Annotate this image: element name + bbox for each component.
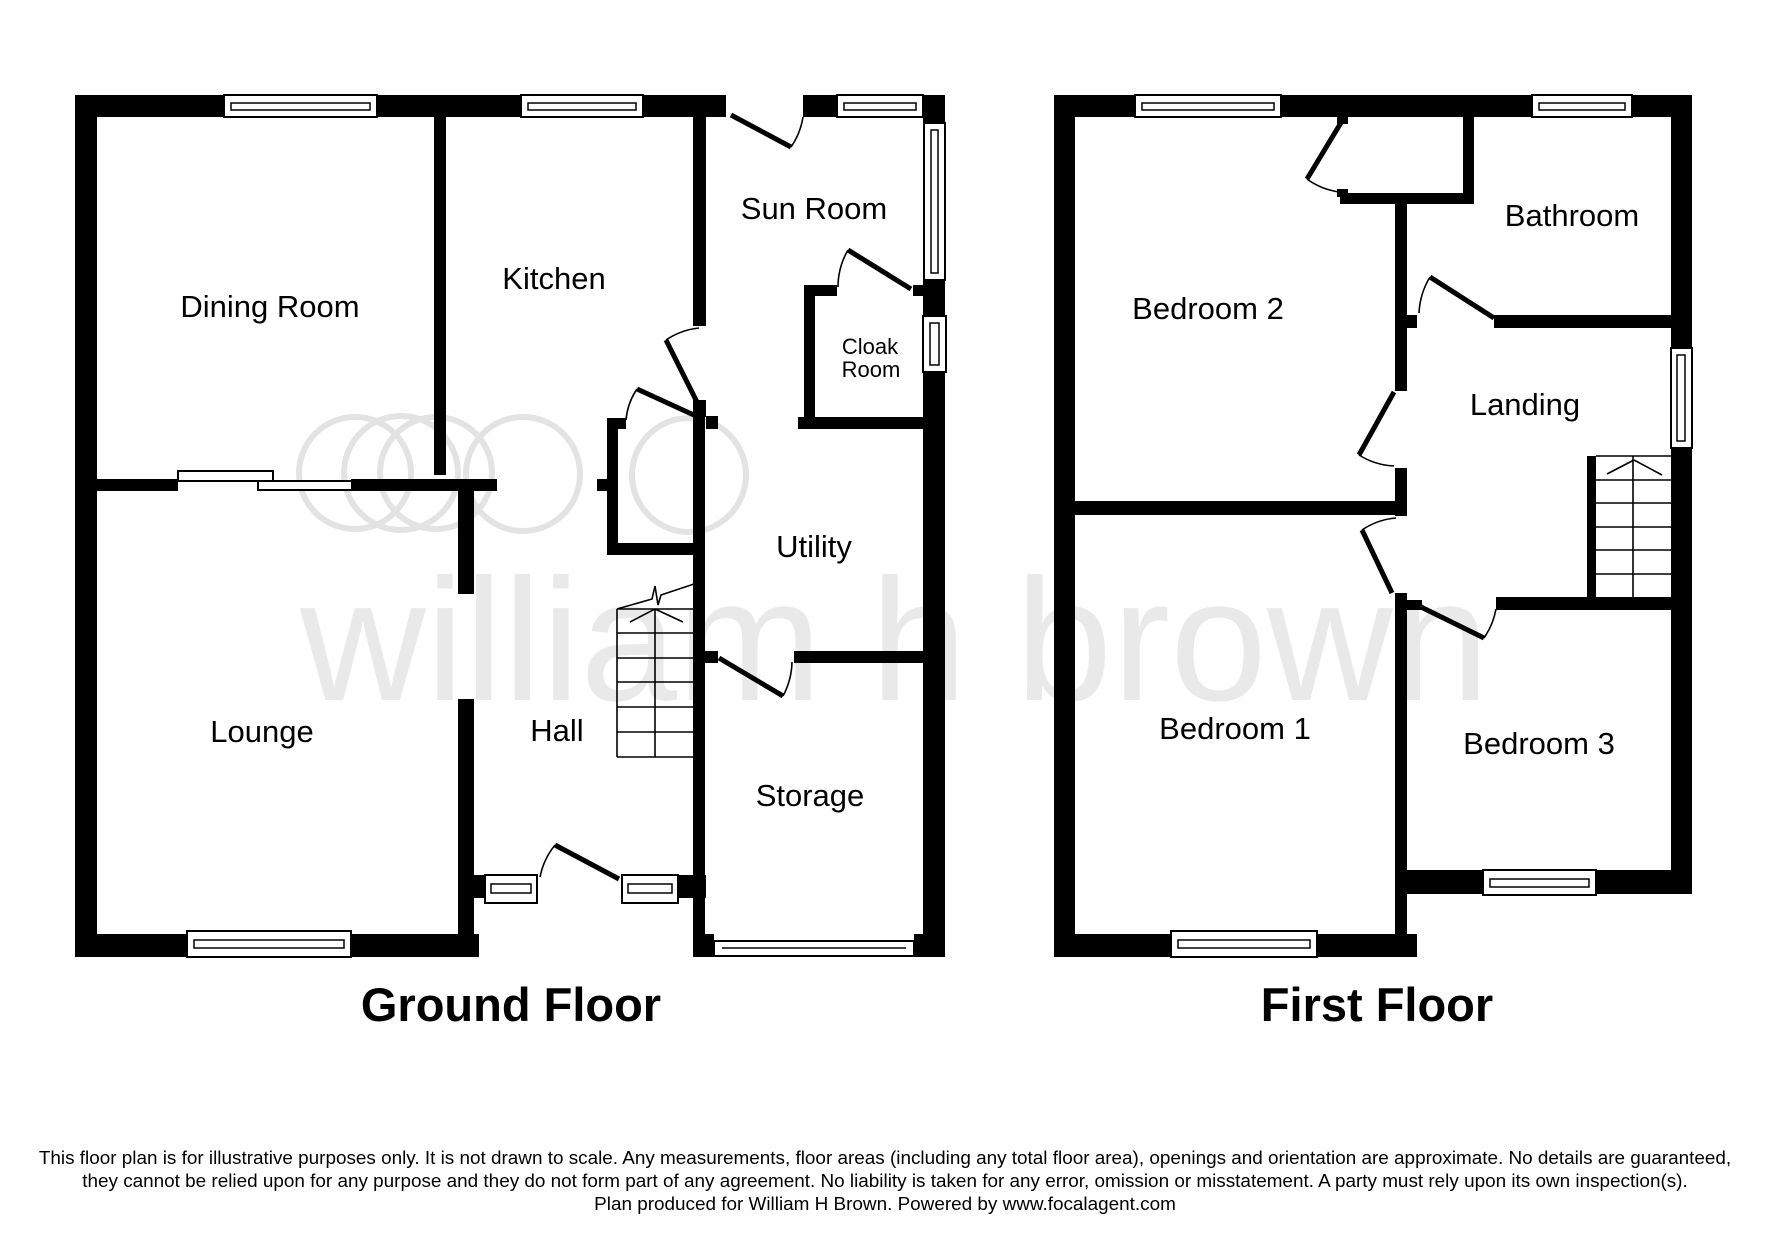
svg-text:Plan produced for William H Br: Plan produced for William H Brown. Power… <box>594 1194 1176 1215</box>
svg-text:Lounge: Lounge <box>210 714 313 749</box>
svg-text:Bedroom 3: Bedroom 3 <box>1463 726 1615 761</box>
svg-text:Landing: Landing <box>1470 387 1580 422</box>
svg-text:First Floor: First Floor <box>1261 978 1493 1031</box>
svg-text:Room: Room <box>842 357 901 382</box>
svg-text:This floor plan is for illustr: This floor plan is for illustrative purp… <box>39 1148 1731 1169</box>
svg-text:Sun Room: Sun Room <box>741 191 887 226</box>
svg-text:william h brown: william h brown <box>299 542 1489 737</box>
svg-text:Hall: Hall <box>530 713 583 748</box>
svg-text:they cannot be relied upon for: they cannot be relied upon for any purpo… <box>82 1171 1687 1192</box>
svg-text:Bedroom 1: Bedroom 1 <box>1159 711 1311 746</box>
svg-text:Utility: Utility <box>776 529 852 564</box>
svg-text:Dining Room: Dining Room <box>180 289 359 324</box>
svg-text:Bedroom 2: Bedroom 2 <box>1132 291 1284 326</box>
svg-text:Cloak: Cloak <box>842 334 899 359</box>
svg-text:Kitchen: Kitchen <box>502 261 605 296</box>
svg-text:Ground Floor: Ground Floor <box>361 978 661 1031</box>
svg-text:Storage: Storage <box>756 778 865 813</box>
svg-text:Bathroom: Bathroom <box>1505 198 1639 233</box>
